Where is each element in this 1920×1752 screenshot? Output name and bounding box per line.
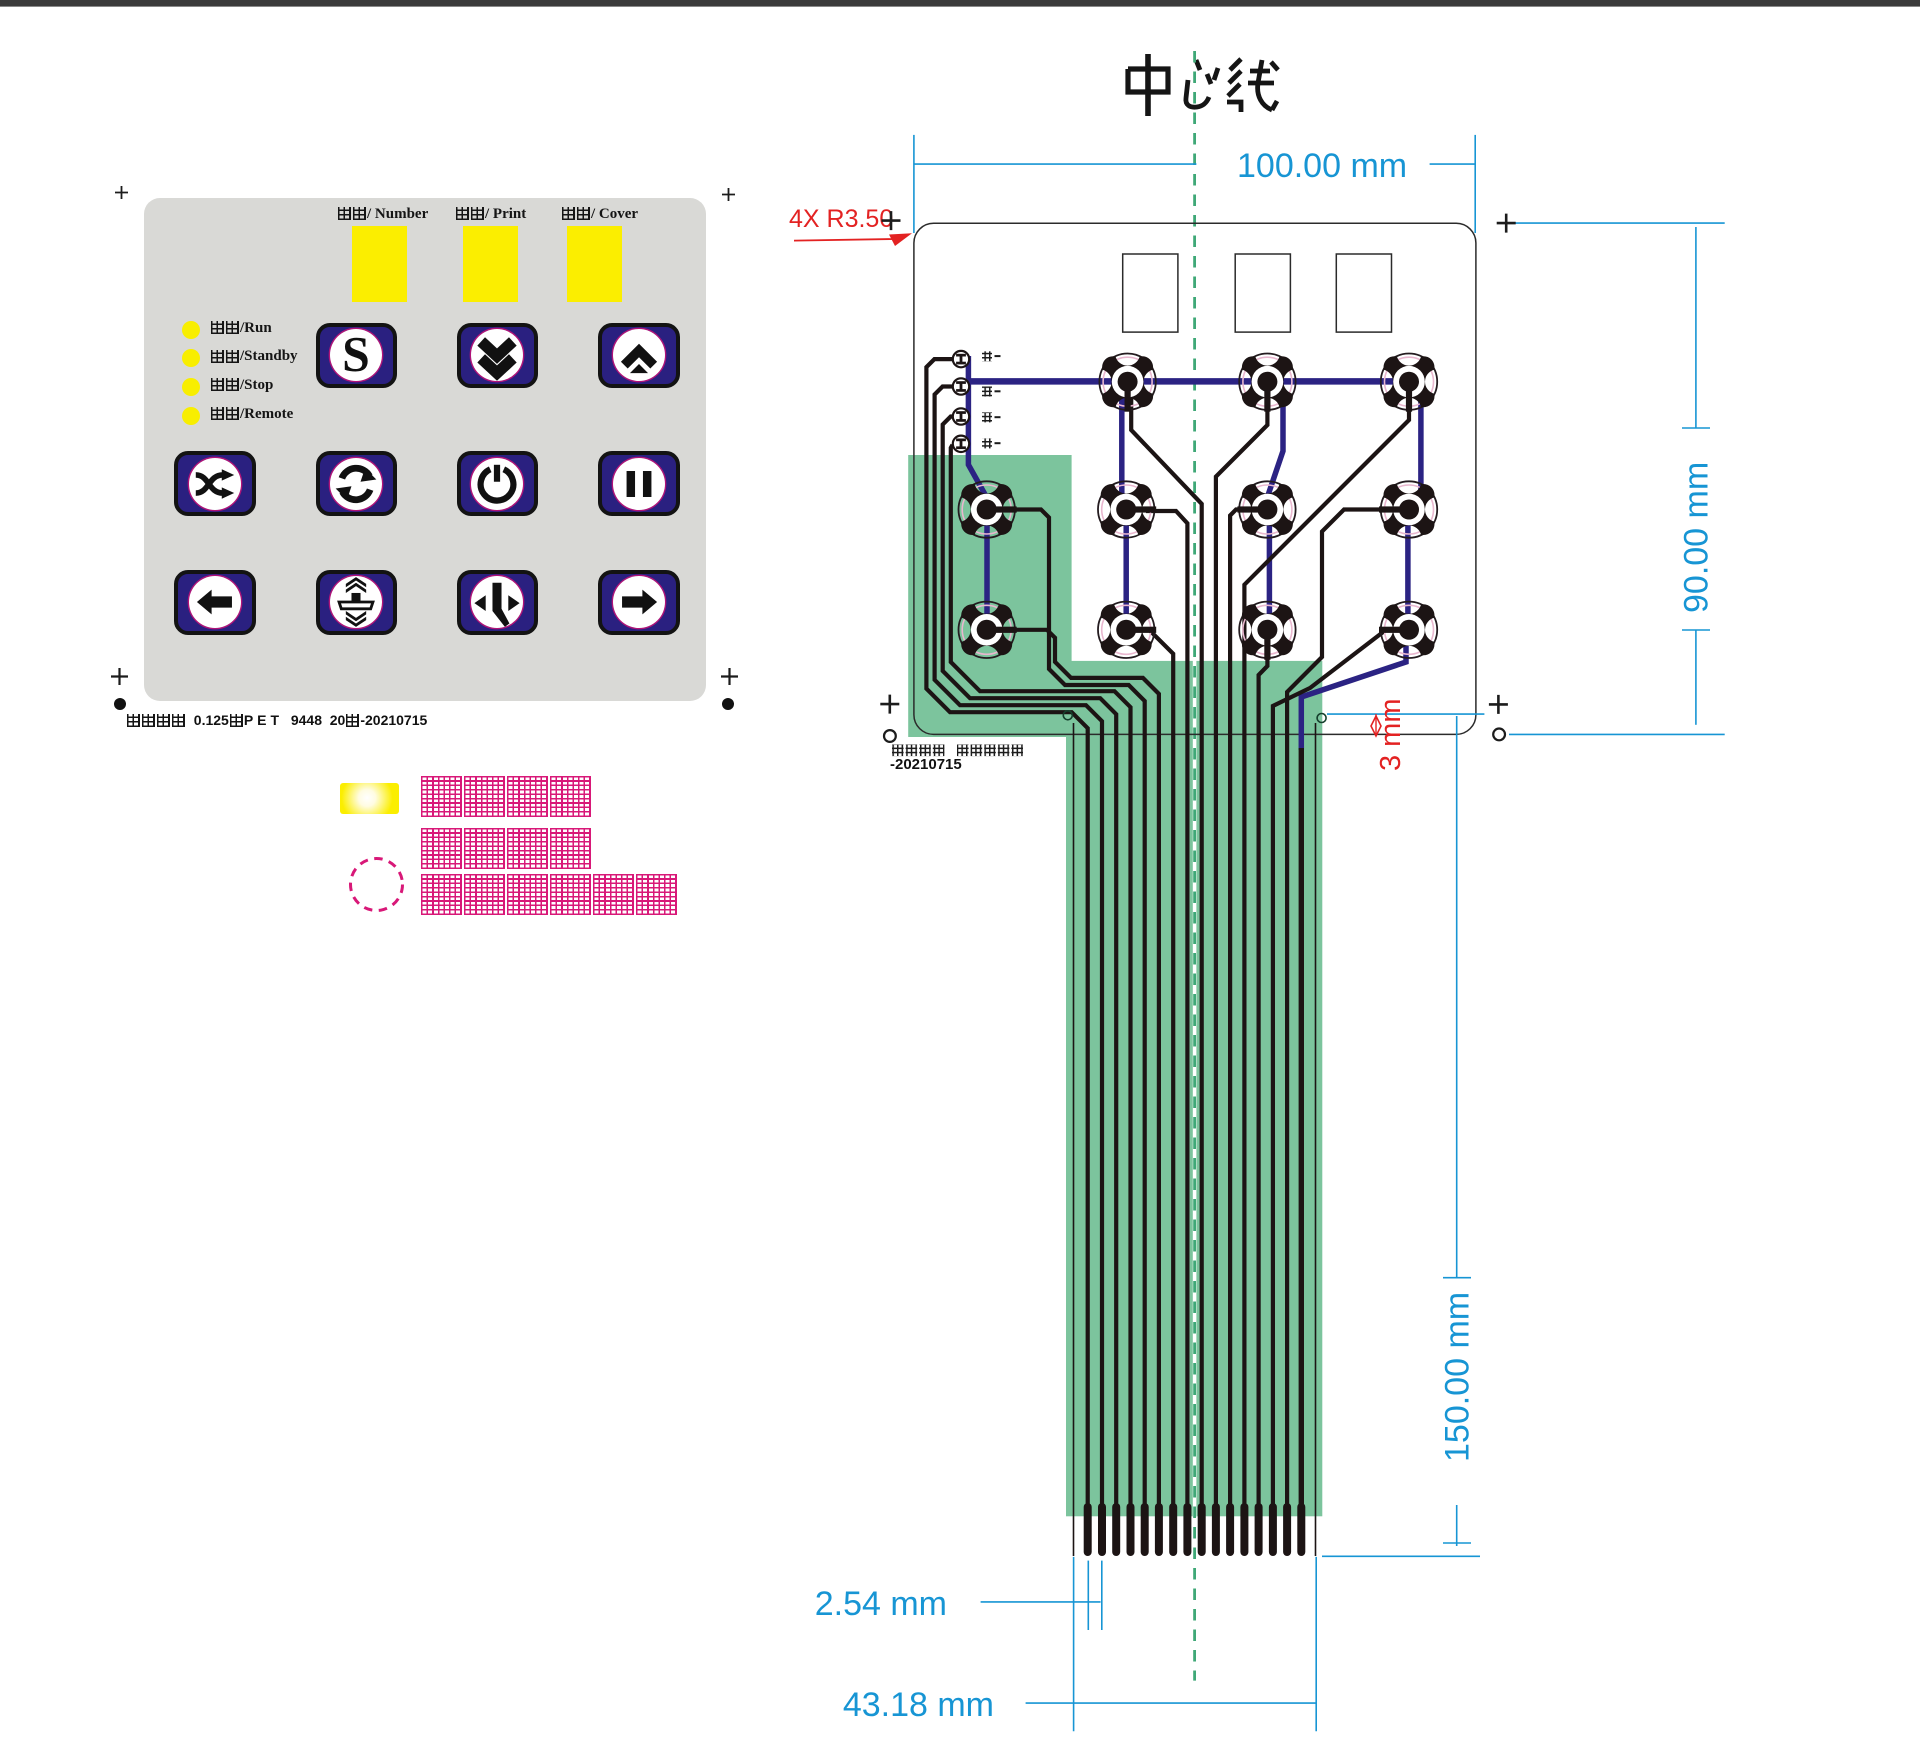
svg-text:3 mm: 3 mm [1375,699,1407,772]
svg-text:-20210715: -20210715 [890,756,962,773]
svg-text:100.00 mm: 100.00 mm [1237,147,1407,185]
svg-text:90.00 mm: 90.00 mm [1678,462,1716,613]
svg-text:150.00 mm: 150.00 mm [1439,1292,1477,1462]
svg-text:4X R3.50: 4X R3.50 [789,205,893,233]
svg-text:2.54 mm: 2.54 mm [815,1585,947,1623]
svg-text:43.18 mm: 43.18 mm [843,1686,994,1724]
